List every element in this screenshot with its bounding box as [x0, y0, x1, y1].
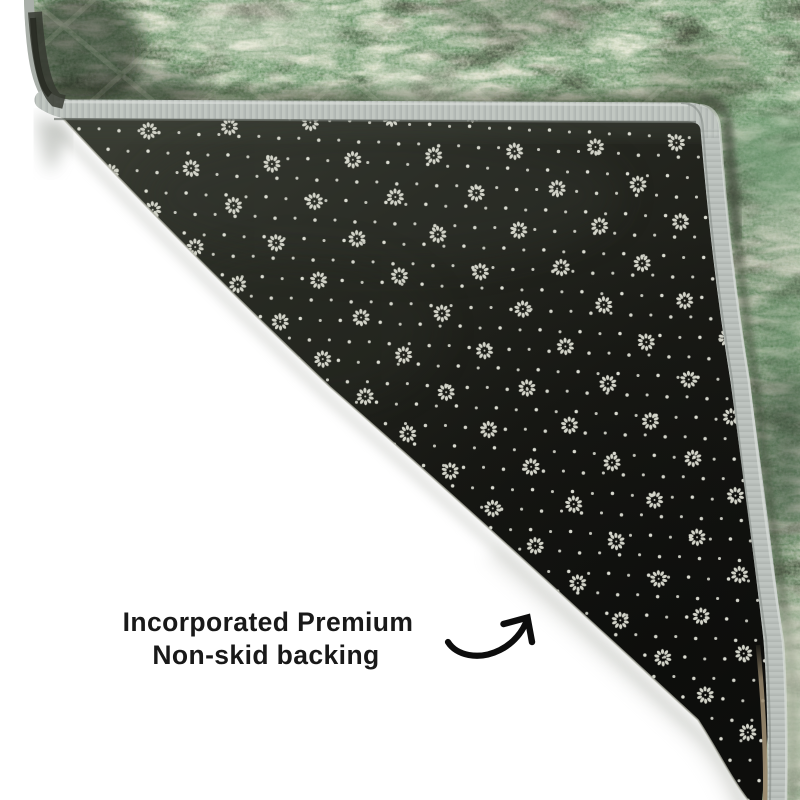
- svg-text:Incorporated Premium: Incorporated Premium: [123, 607, 414, 637]
- svg-text:Non-skid backing: Non-skid backing: [152, 640, 379, 670]
